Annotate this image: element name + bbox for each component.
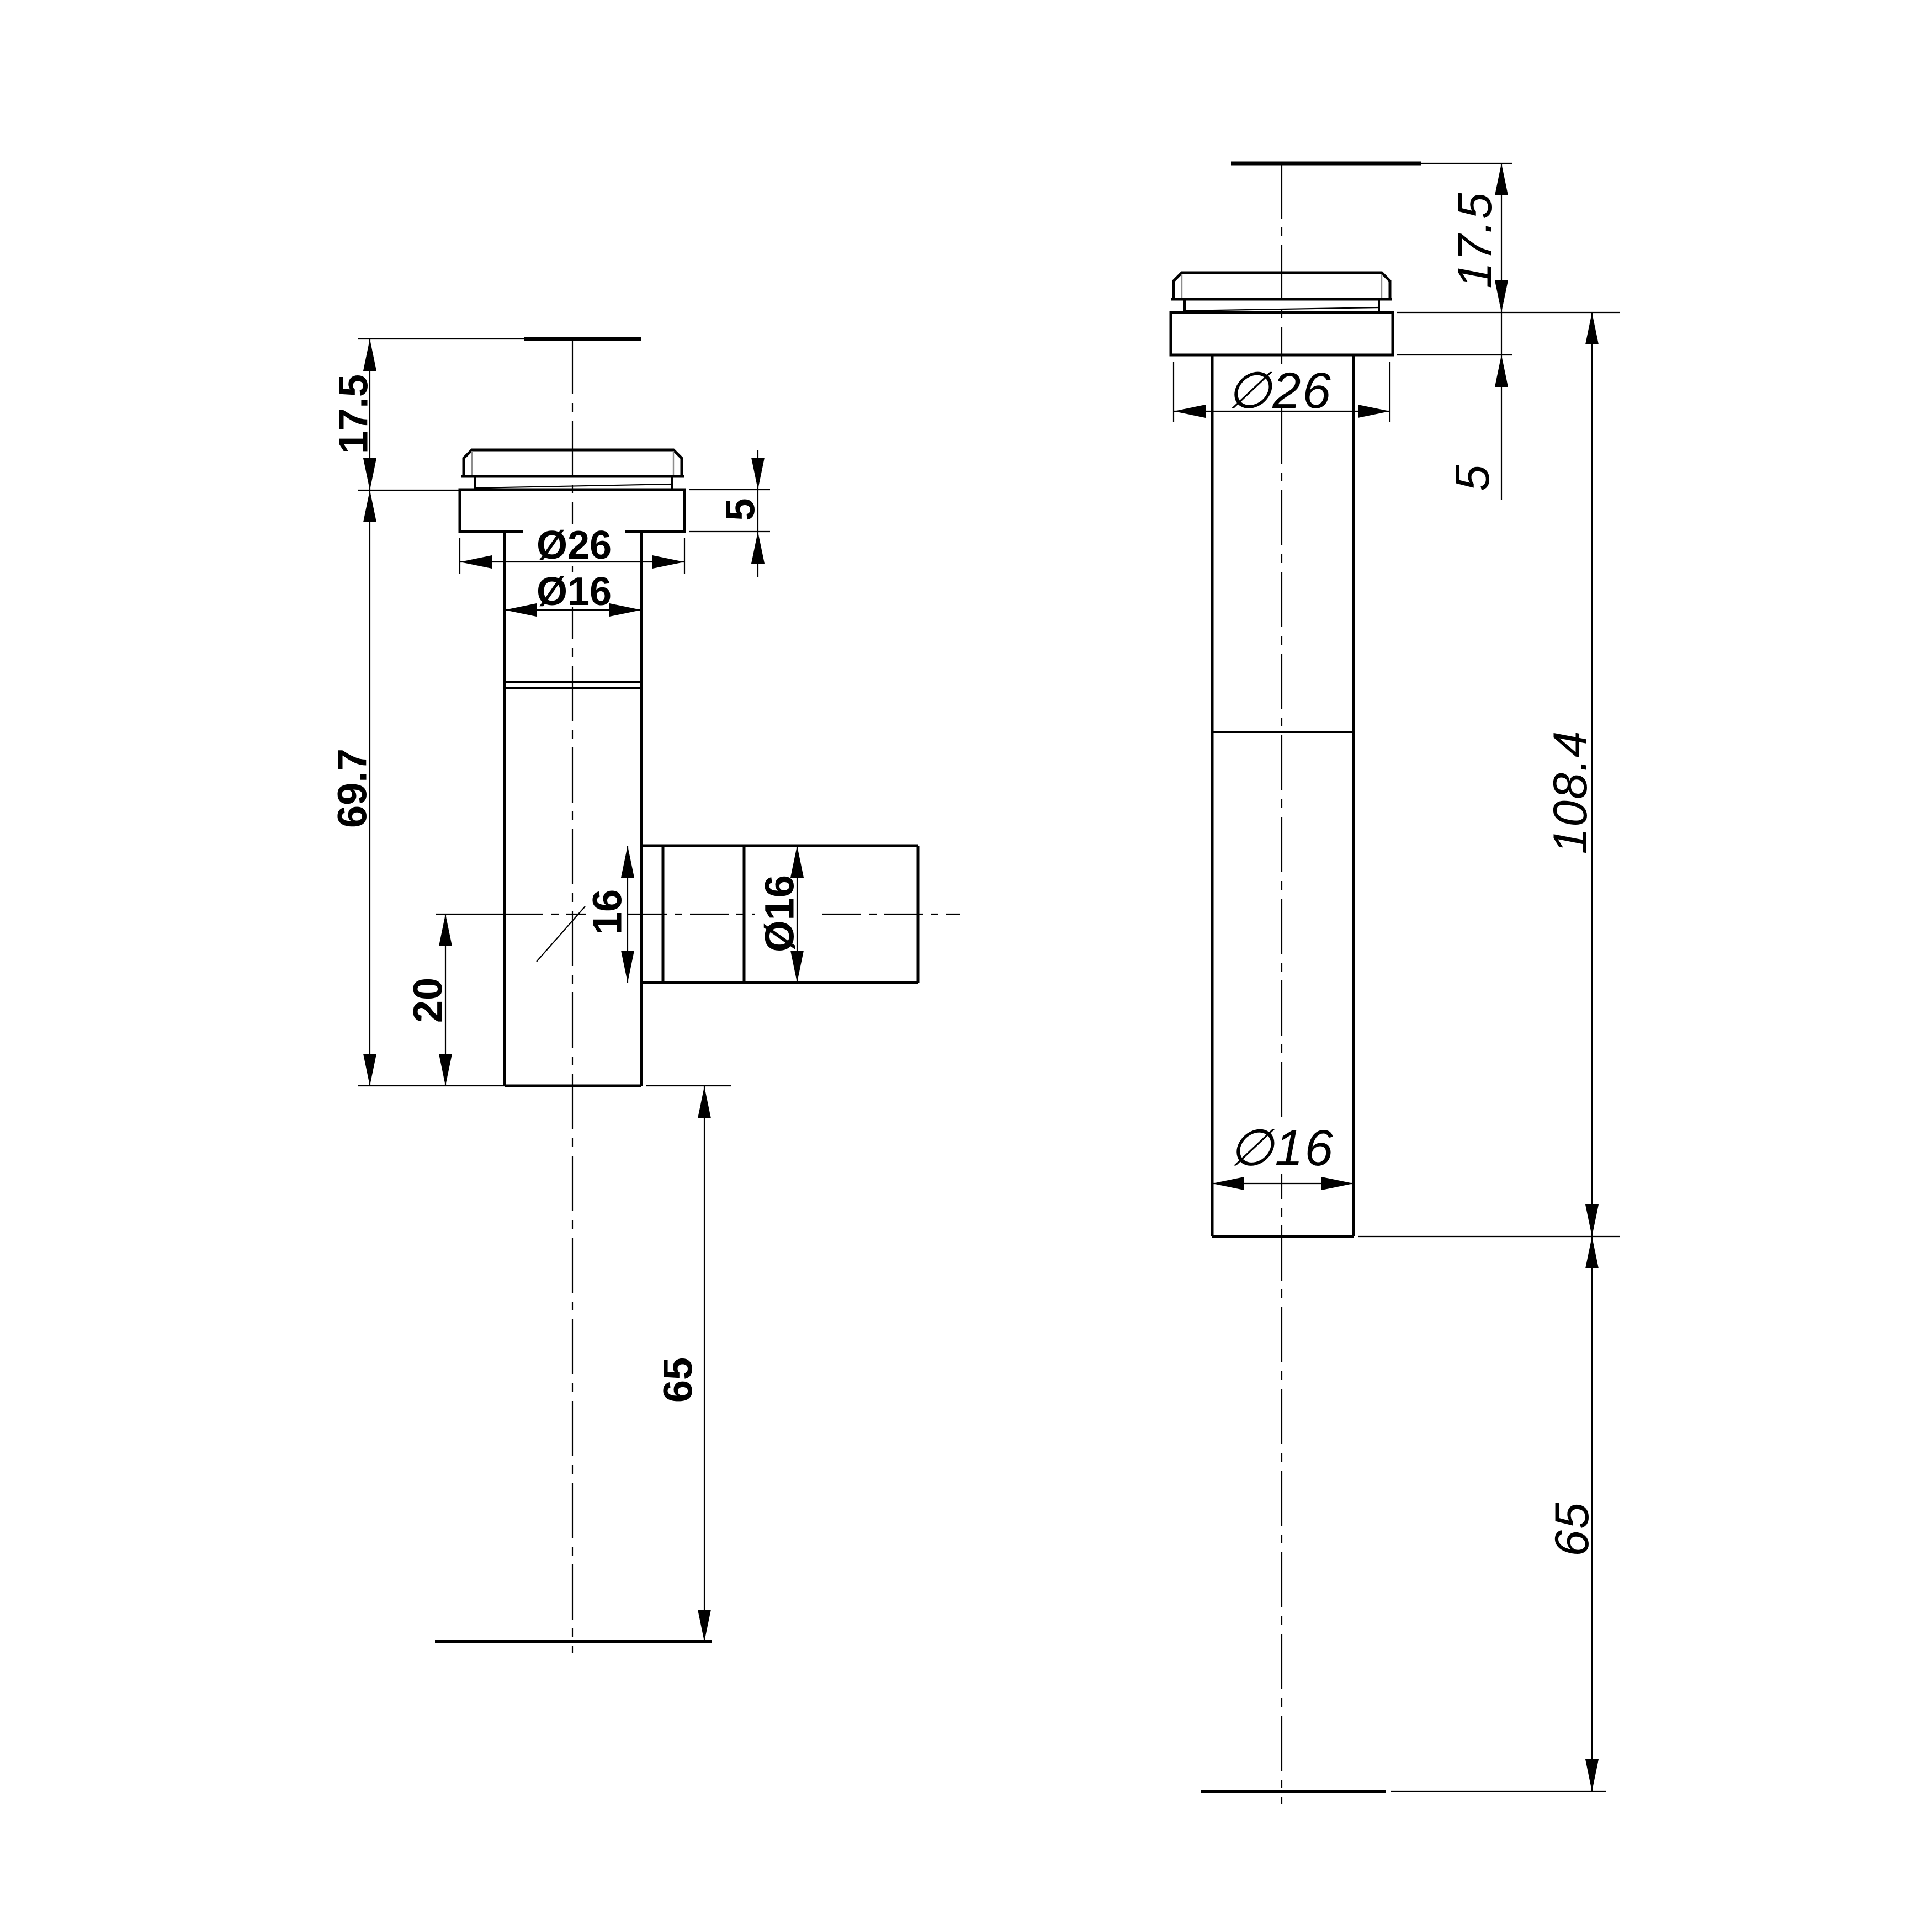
dim-label-left-body-length: 69.7 (330, 749, 375, 828)
technical-drawing: 17.5 69.7 20 16 Ø16 65 Ø26 Ø16 5 17.5 5 … (0, 0, 1932, 1932)
arrowheads (363, 163, 1599, 1791)
dim-label-right-tail-length: 65 (1546, 1501, 1599, 1557)
dim-label-left-branch-offset: 20 (405, 978, 451, 1023)
left-view-centerlines (436, 339, 960, 1653)
dim-label-left-shaft-dia: Ø16 (537, 570, 612, 614)
dim-label-right-tube-dia: ∅16 (1229, 1120, 1334, 1176)
label-masks (523, 364, 1347, 1174)
dim-label-left-slab-thickness: 5 (718, 498, 763, 521)
left-view-labels: 17.5 69.7 20 16 Ø16 65 Ø26 Ø16 5 (330, 374, 803, 1403)
dim-label-right-slab-thickness: 5 (1446, 464, 1499, 491)
dim-label-left-tail-length: 65 (655, 1357, 701, 1403)
dim-label-left-outer-dia: Ø26 (537, 523, 612, 567)
dim-label-right-cap-height: 17.5 (1448, 192, 1501, 288)
dim-label-left-cap-height: 17.5 (331, 374, 376, 454)
dim-label-right-body-length: 108.4 (1544, 730, 1597, 854)
dim-label-right-outer-dia: ∅26 (1227, 363, 1332, 419)
dim-label-left-branch-dia: Ø16 (757, 875, 803, 952)
dim-label-left-branch-bore: 16 (585, 889, 630, 935)
right-view-labels: 17.5 5 ∅26 108.4 ∅16 65 (1227, 192, 1599, 1557)
